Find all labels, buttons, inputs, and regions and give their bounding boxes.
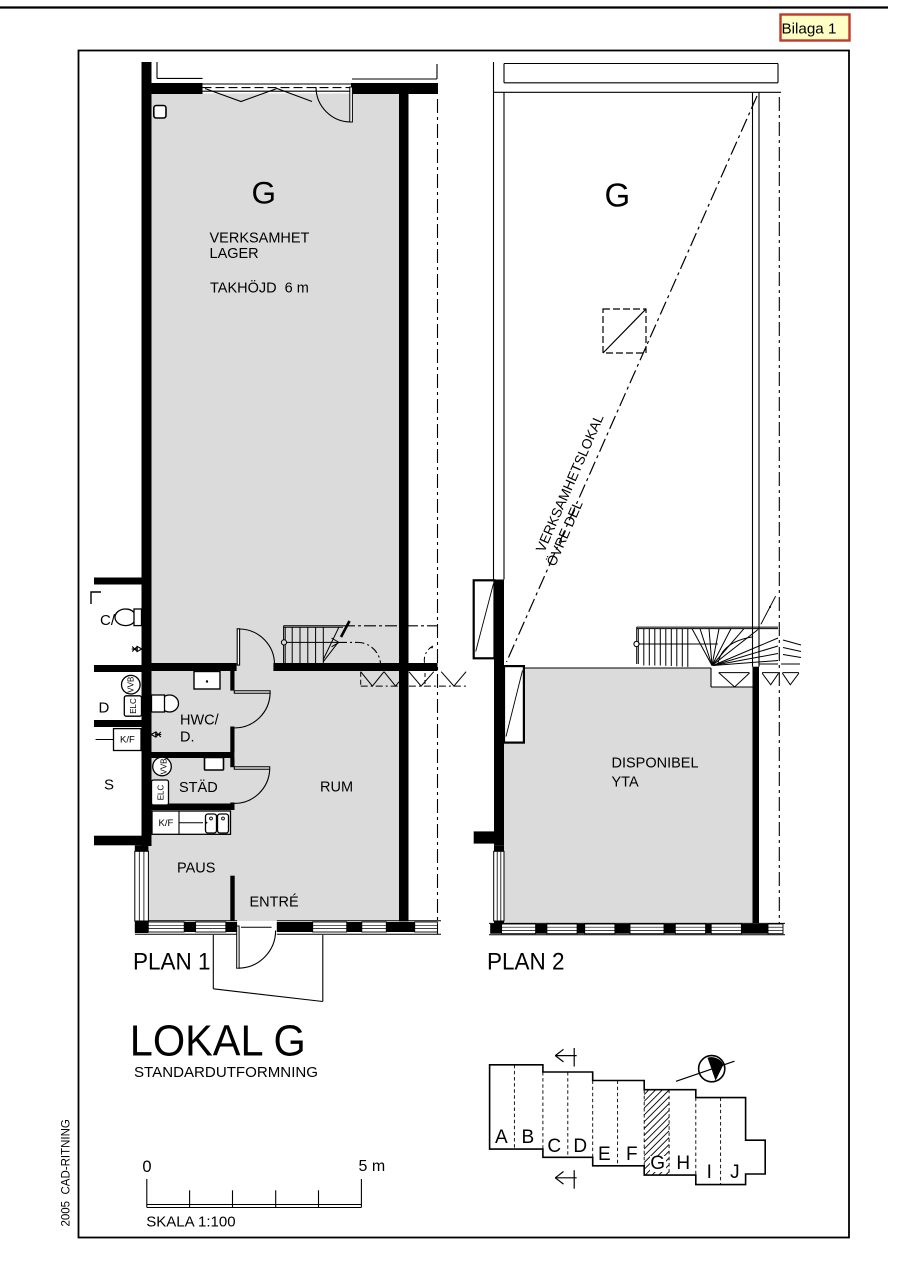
svg-text:DISPONIBEL: DISPONIBEL — [612, 756, 699, 772]
svg-text:LAGER: LAGER — [210, 246, 259, 262]
svg-text:ELC: ELC — [157, 784, 166, 800]
svg-text:5 m: 5 m — [359, 1158, 386, 1175]
svg-text:D: D — [573, 1136, 587, 1157]
svg-text:PLAN 2: PLAN 2 — [487, 949, 565, 976]
svg-text:A: A — [495, 1127, 508, 1148]
svg-text:J: J — [730, 1162, 740, 1183]
svg-text:G: G — [605, 177, 631, 214]
svg-text:2005 CAD-RITNING: 2005 CAD-RITNING — [61, 1119, 73, 1226]
svg-text:RUM: RUM — [320, 780, 353, 796]
svg-text:LOKAL G: LOKAL G — [130, 1018, 306, 1066]
svg-text:PAUS: PAUS — [177, 861, 215, 877]
svg-text:STANDARDUTFORMNING: STANDARDUTFORMNING — [134, 1064, 318, 1081]
svg-text:VVB: VVB — [127, 677, 136, 693]
svg-text:STÄD: STÄD — [179, 779, 218, 796]
svg-text:I: I — [707, 1162, 712, 1183]
svg-text:D: D — [99, 700, 110, 717]
svg-text:0: 0 — [142, 1158, 151, 1176]
svg-text:ELC: ELC — [129, 698, 138, 714]
svg-text:HWC/: HWC/ — [180, 713, 220, 729]
svg-text:F: F — [626, 1144, 638, 1165]
svg-text:K/F: K/F — [159, 818, 174, 829]
svg-text:C/: C/ — [100, 612, 116, 629]
svg-text:C: C — [547, 1136, 561, 1157]
svg-text:TAKHÖJD 6 m: TAKHÖJD 6 m — [210, 279, 309, 297]
svg-text:K/F: K/F — [120, 735, 135, 746]
svg-text:H: H — [676, 1153, 690, 1174]
svg-text:G: G — [252, 175, 277, 211]
svg-text:E: E — [598, 1144, 611, 1165]
svg-text:Bilaga 1: Bilaga 1 — [782, 21, 837, 38]
svg-text:YTA: YTA — [612, 775, 639, 791]
svg-text:VVB: VVB — [160, 758, 169, 774]
svg-text:VERKSAMHET: VERKSAMHET — [210, 231, 310, 247]
svg-text:ENTRÉ: ENTRÉ — [250, 894, 299, 911]
svg-text:S: S — [104, 777, 114, 794]
svg-text:B: B — [522, 1127, 535, 1148]
svg-text:PLAN 1: PLAN 1 — [133, 949, 211, 976]
svg-text:G: G — [650, 1153, 665, 1174]
svg-text:SKALA 1:100: SKALA 1:100 — [146, 1214, 235, 1231]
svg-text:D.: D. — [180, 730, 195, 746]
